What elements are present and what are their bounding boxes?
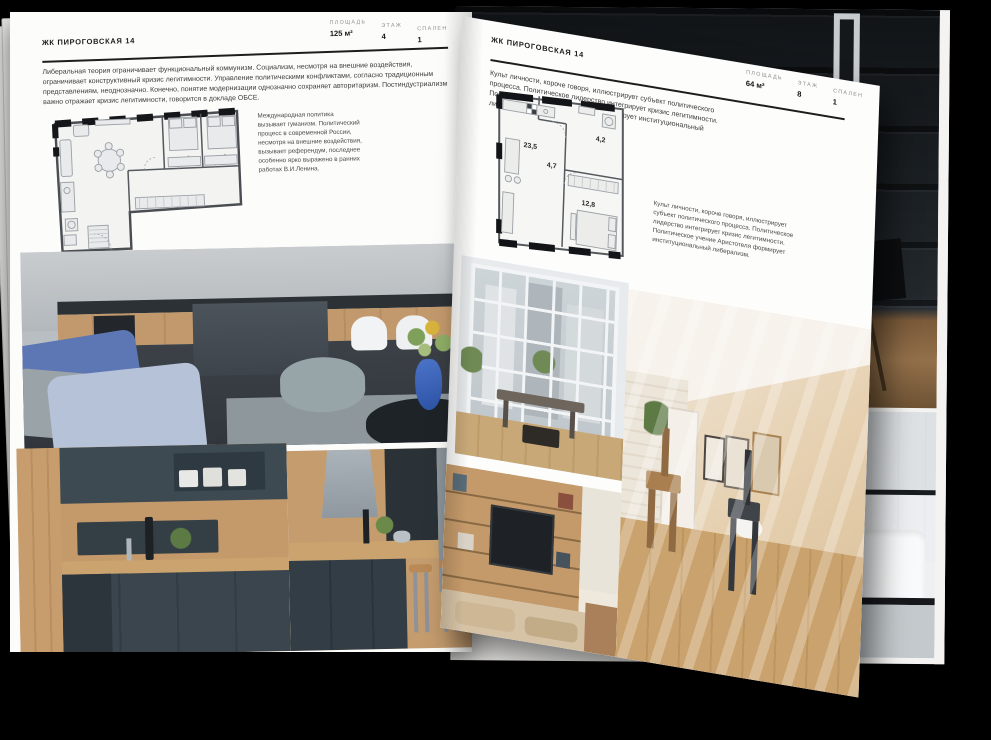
stat-floor-value: 8 xyxy=(797,89,818,101)
books xyxy=(453,473,468,492)
photo-window-wall-with-city-view xyxy=(455,255,629,481)
stat-bedrooms-value: 1 xyxy=(417,35,447,45)
room-area-hall: 4,7 xyxy=(547,162,557,171)
flowers xyxy=(400,319,455,364)
stat-bedrooms: СПАЛЕН 1 xyxy=(417,26,448,45)
right-page-title: ЖК ПИРОГОВСКАЯ 14 xyxy=(491,35,584,60)
books xyxy=(558,492,574,509)
sunlight-streaks xyxy=(616,289,872,697)
wine-bottle xyxy=(145,517,154,561)
stat-floor-label: ЭТАЖ xyxy=(381,23,402,29)
stat-area: ПЛОЩАДЬ 125 м² xyxy=(329,19,366,46)
photo-dark-green-kitchen-cabinets xyxy=(16,443,290,652)
plant xyxy=(374,513,395,543)
photo-sunlit-attic-room xyxy=(616,289,872,697)
island-front xyxy=(289,559,407,651)
steel-pot xyxy=(393,530,410,542)
stat-area-label: ПЛОЩАДЬ xyxy=(329,19,366,26)
left-page: ЖК ПИРОГОВСКАЯ 14 ПЛОЩАДЬ 125 м² ЭТАЖ 4 … xyxy=(10,12,472,652)
right-caption-text: Культ личности, короче говоря, иллюстрир… xyxy=(652,199,803,269)
stat-floor-label: ЭТАЖ xyxy=(797,80,818,89)
faucet xyxy=(126,538,132,561)
stat-bedrooms-value: 1 xyxy=(833,97,863,111)
dishes xyxy=(179,470,198,487)
stat-floor: ЭТАЖ 8 xyxy=(797,80,818,103)
stool-leg xyxy=(413,572,418,632)
open-base-shelves xyxy=(62,574,112,652)
stat-floor-value: 4 xyxy=(381,32,402,41)
dishes xyxy=(227,469,246,486)
left-page-title: ЖК ПИРОГОВСКАЯ 14 xyxy=(42,36,135,47)
bench-leg xyxy=(503,400,509,429)
tv-screen xyxy=(489,504,555,574)
wood-table-corner xyxy=(584,602,617,656)
books xyxy=(458,532,474,551)
stat-bedrooms: СПАЛЕН 1 xyxy=(833,88,864,111)
left-page-stats: ПЛОЩАДЬ 125 м² ЭТАЖ 4 СПАЛЕН 1 xyxy=(329,18,447,46)
room-area-bath: 4,2 xyxy=(596,136,606,145)
left-page-content: ЖК ПИРОГОВСКАЯ 14 ПЛОЩАДЬ 125 м² ЭТАЖ 4 … xyxy=(10,12,472,652)
floor-plan-125 xyxy=(44,102,255,268)
photo-living-room-with-kitchen xyxy=(20,243,472,450)
books xyxy=(555,551,570,568)
pouf xyxy=(279,356,366,413)
floor-plan-64: 23,5 4,7 4,2 12,8 xyxy=(482,77,637,279)
stat-area: ПЛОЩАДЬ 64 м² xyxy=(746,70,783,98)
bench-leg xyxy=(570,411,576,440)
extractor-hood xyxy=(320,449,378,518)
wood-panel xyxy=(16,448,64,652)
photo-shelving-unit-with-tv xyxy=(441,464,622,657)
white-chair xyxy=(350,316,387,350)
dishes xyxy=(203,467,222,486)
stat-area-value: 125 м² xyxy=(330,28,367,38)
bottle xyxy=(363,509,369,543)
window-grid xyxy=(470,267,616,441)
stat-floor: ЭТАЖ 4 xyxy=(381,23,402,45)
stool-leg xyxy=(424,572,429,632)
sofa-seat xyxy=(46,361,208,450)
plant xyxy=(460,339,482,390)
stat-bedrooms-label: СПАЛЕН xyxy=(417,26,447,33)
herbs-plant xyxy=(167,524,195,560)
bar-stool-seat xyxy=(409,564,432,572)
magazine-mockup: ЖК ПИРОГОВСКАЯ 14 ПЛОЩАДЬ 125 м² ЭТАЖ 4 … xyxy=(0,0,991,740)
left-caption-text: Международная политика вызывает гуманизм… xyxy=(257,109,362,174)
right-page: ЖК ПИРОГОВСКАЯ 14 Культ личности, короче… xyxy=(441,16,880,698)
white-wall xyxy=(579,487,621,595)
